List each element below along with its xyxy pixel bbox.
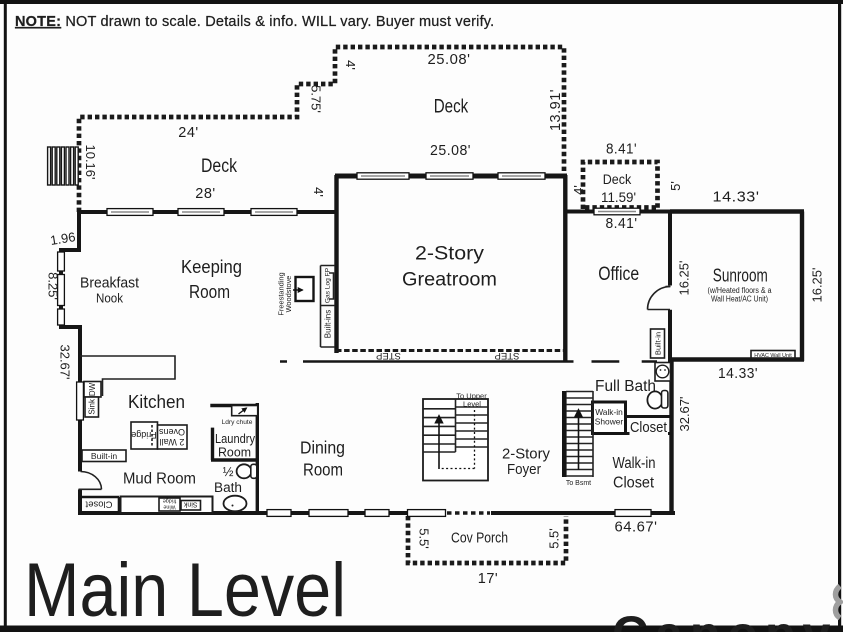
svg-text:Woodstove: Woodstove (284, 276, 293, 313)
svg-text:Ovens: Ovens (158, 427, 185, 437)
svg-text:32.67': 32.67' (58, 344, 73, 379)
svg-text:Office: Office (598, 264, 639, 285)
svg-text:16.25': 16.25' (677, 260, 692, 295)
svg-text:Shower: Shower (595, 417, 624, 427)
svg-text:32.67': 32.67' (677, 396, 692, 431)
svg-text:Built-in: Built-in (91, 451, 117, 461)
svg-text:Deck: Deck (603, 172, 632, 187)
svg-text:4': 4' (343, 60, 358, 70)
svg-text:Nook: Nook (96, 291, 123, 306)
svg-text:4': 4' (311, 187, 326, 197)
svg-text:STEP: STEP (376, 350, 401, 361)
svg-text:HVAC Wall Unit: HVAC Wall Unit (754, 353, 792, 359)
svg-text:14.33': 14.33' (718, 366, 758, 382)
svg-text:13.91': 13.91' (548, 89, 564, 131)
svg-text:NOTE: NOT drawn to scale. Deta: NOTE: NOT drawn to scale. Details & info… (15, 14, 494, 30)
svg-text:Cov Porch: Cov Porch (451, 531, 508, 547)
svg-text:16.25': 16.25' (810, 267, 825, 302)
svg-text:Sink: Sink (87, 398, 96, 415)
svg-text:To Bsmt: To Bsmt (566, 480, 591, 487)
svg-text:fridge: fridge (163, 498, 177, 504)
svg-text:Canopy 202: Canopy 202 (612, 606, 843, 632)
svg-text:Full Bath: Full Bath (595, 378, 656, 395)
svg-text:5.75': 5.75' (309, 85, 324, 113)
svg-text:Kitchen: Kitchen (128, 392, 185, 412)
svg-text:5.5': 5.5' (417, 528, 432, 549)
svg-text:64.67': 64.67' (615, 520, 658, 536)
svg-text:8.41': 8.41' (606, 216, 638, 232)
svg-text:25.08': 25.08' (430, 143, 471, 159)
svg-text:2-Story: 2-Story (415, 244, 485, 265)
svg-text:Bath: Bath (214, 480, 242, 495)
svg-text:½: ½ (223, 464, 234, 479)
svg-text:Laundry: Laundry (215, 431, 255, 446)
svg-text:25.08': 25.08' (428, 52, 471, 68)
svg-text:8.41': 8.41' (606, 142, 637, 158)
svg-text:2-Story: 2-Story (502, 446, 550, 463)
svg-text:Sink: Sink (183, 501, 197, 508)
svg-text:DW: DW (88, 382, 97, 396)
svg-text:Walk-in: Walk-in (613, 455, 656, 472)
svg-text:1.96: 1.96 (49, 229, 76, 248)
svg-text:Room: Room (218, 446, 251, 460)
svg-text:28': 28' (195, 186, 215, 202)
svg-text:11.59': 11.59' (601, 190, 636, 205)
svg-text:Walk-in: Walk-in (595, 407, 623, 417)
svg-text:Built-in: Built-in (653, 332, 662, 355)
svg-text:Built-ins: Built-ins (324, 310, 333, 338)
svg-text:Closet: Closet (613, 475, 655, 492)
svg-text:Room: Room (303, 460, 343, 480)
svg-text:Foyer: Foyer (507, 461, 541, 478)
svg-text:5.5': 5.5' (547, 528, 562, 549)
svg-text:Gas Log FP: Gas Log FP (325, 267, 332, 303)
svg-text:Sunroom: Sunroom (713, 266, 768, 286)
svg-text:Wall Heat/AC Unit): Wall Heat/AC Unit) (711, 295, 768, 304)
svg-text:5': 5' (668, 181, 683, 191)
svg-text:Main Level: Main Level (24, 548, 346, 632)
svg-text:10.16': 10.16' (83, 144, 98, 179)
svg-text:Mud Room: Mud Room (123, 471, 196, 488)
svg-text:Deck: Deck (434, 97, 469, 118)
svg-text:STEP: STEP (495, 350, 520, 361)
svg-text:Fridge: Fridge (131, 430, 157, 440)
svg-text:Keeping: Keeping (181, 256, 242, 277)
svg-text:Closet: Closet (85, 499, 112, 510)
svg-text:Greatroom: Greatroom (402, 270, 497, 291)
svg-text:Breakfast: Breakfast (80, 276, 139, 292)
svg-text:17': 17' (478, 571, 498, 587)
svg-text:Deck: Deck (201, 156, 237, 177)
svg-text:2 Wall: 2 Wall (160, 437, 185, 447)
svg-text:Room: Room (189, 281, 230, 302)
svg-text:Level: Level (463, 400, 481, 409)
svg-text:14.33': 14.33' (713, 190, 760, 206)
svg-text:24': 24' (178, 125, 198, 141)
svg-text:4': 4' (571, 185, 586, 195)
svg-text:Ldry chute: Ldry chute (222, 419, 253, 426)
svg-text:Dining: Dining (300, 438, 345, 458)
svg-text:Closet: Closet (630, 420, 667, 436)
svg-text:8.25': 8.25' (46, 272, 61, 300)
